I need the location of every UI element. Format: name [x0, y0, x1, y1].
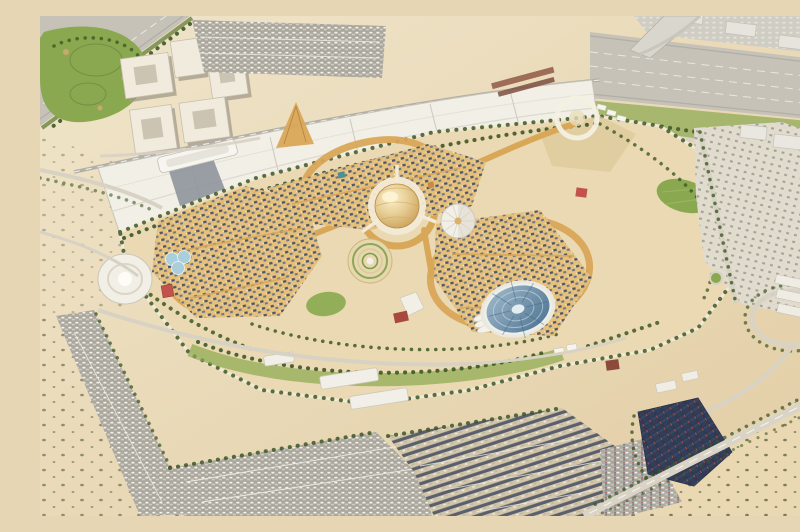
gate-center	[569, 110, 585, 126]
trefoil-core	[118, 272, 132, 286]
blue-dome	[172, 262, 185, 275]
red-pavilion	[161, 284, 174, 298]
roundabout	[710, 272, 722, 284]
aerial-render: Daytime aerial 3D rendering of a desert …	[40, 16, 800, 516]
warehouse	[773, 134, 800, 150]
tower-courtyard	[141, 117, 164, 140]
parked-cars	[192, 20, 386, 78]
warehouse	[740, 125, 767, 141]
orange-pavilion	[427, 181, 434, 188]
dome-highlight	[382, 192, 398, 203]
fan-hub	[455, 218, 462, 225]
garden-center	[367, 258, 374, 265]
red-pavilion	[575, 187, 587, 197]
spiral-garden	[348, 239, 392, 283]
tower-courtyard	[192, 109, 216, 130]
sand-trap	[98, 106, 103, 111]
sand-trap	[63, 49, 69, 55]
car-parks-north	[192, 20, 386, 78]
fan-canopy-pavilion	[441, 204, 475, 238]
tower-courtyard	[133, 64, 157, 85]
expo-aerial-svg: Daytime aerial 3D rendering of a desert …	[40, 16, 800, 516]
dark-red-pavilion	[605, 359, 619, 371]
trefoil-pavilion	[98, 254, 152, 304]
